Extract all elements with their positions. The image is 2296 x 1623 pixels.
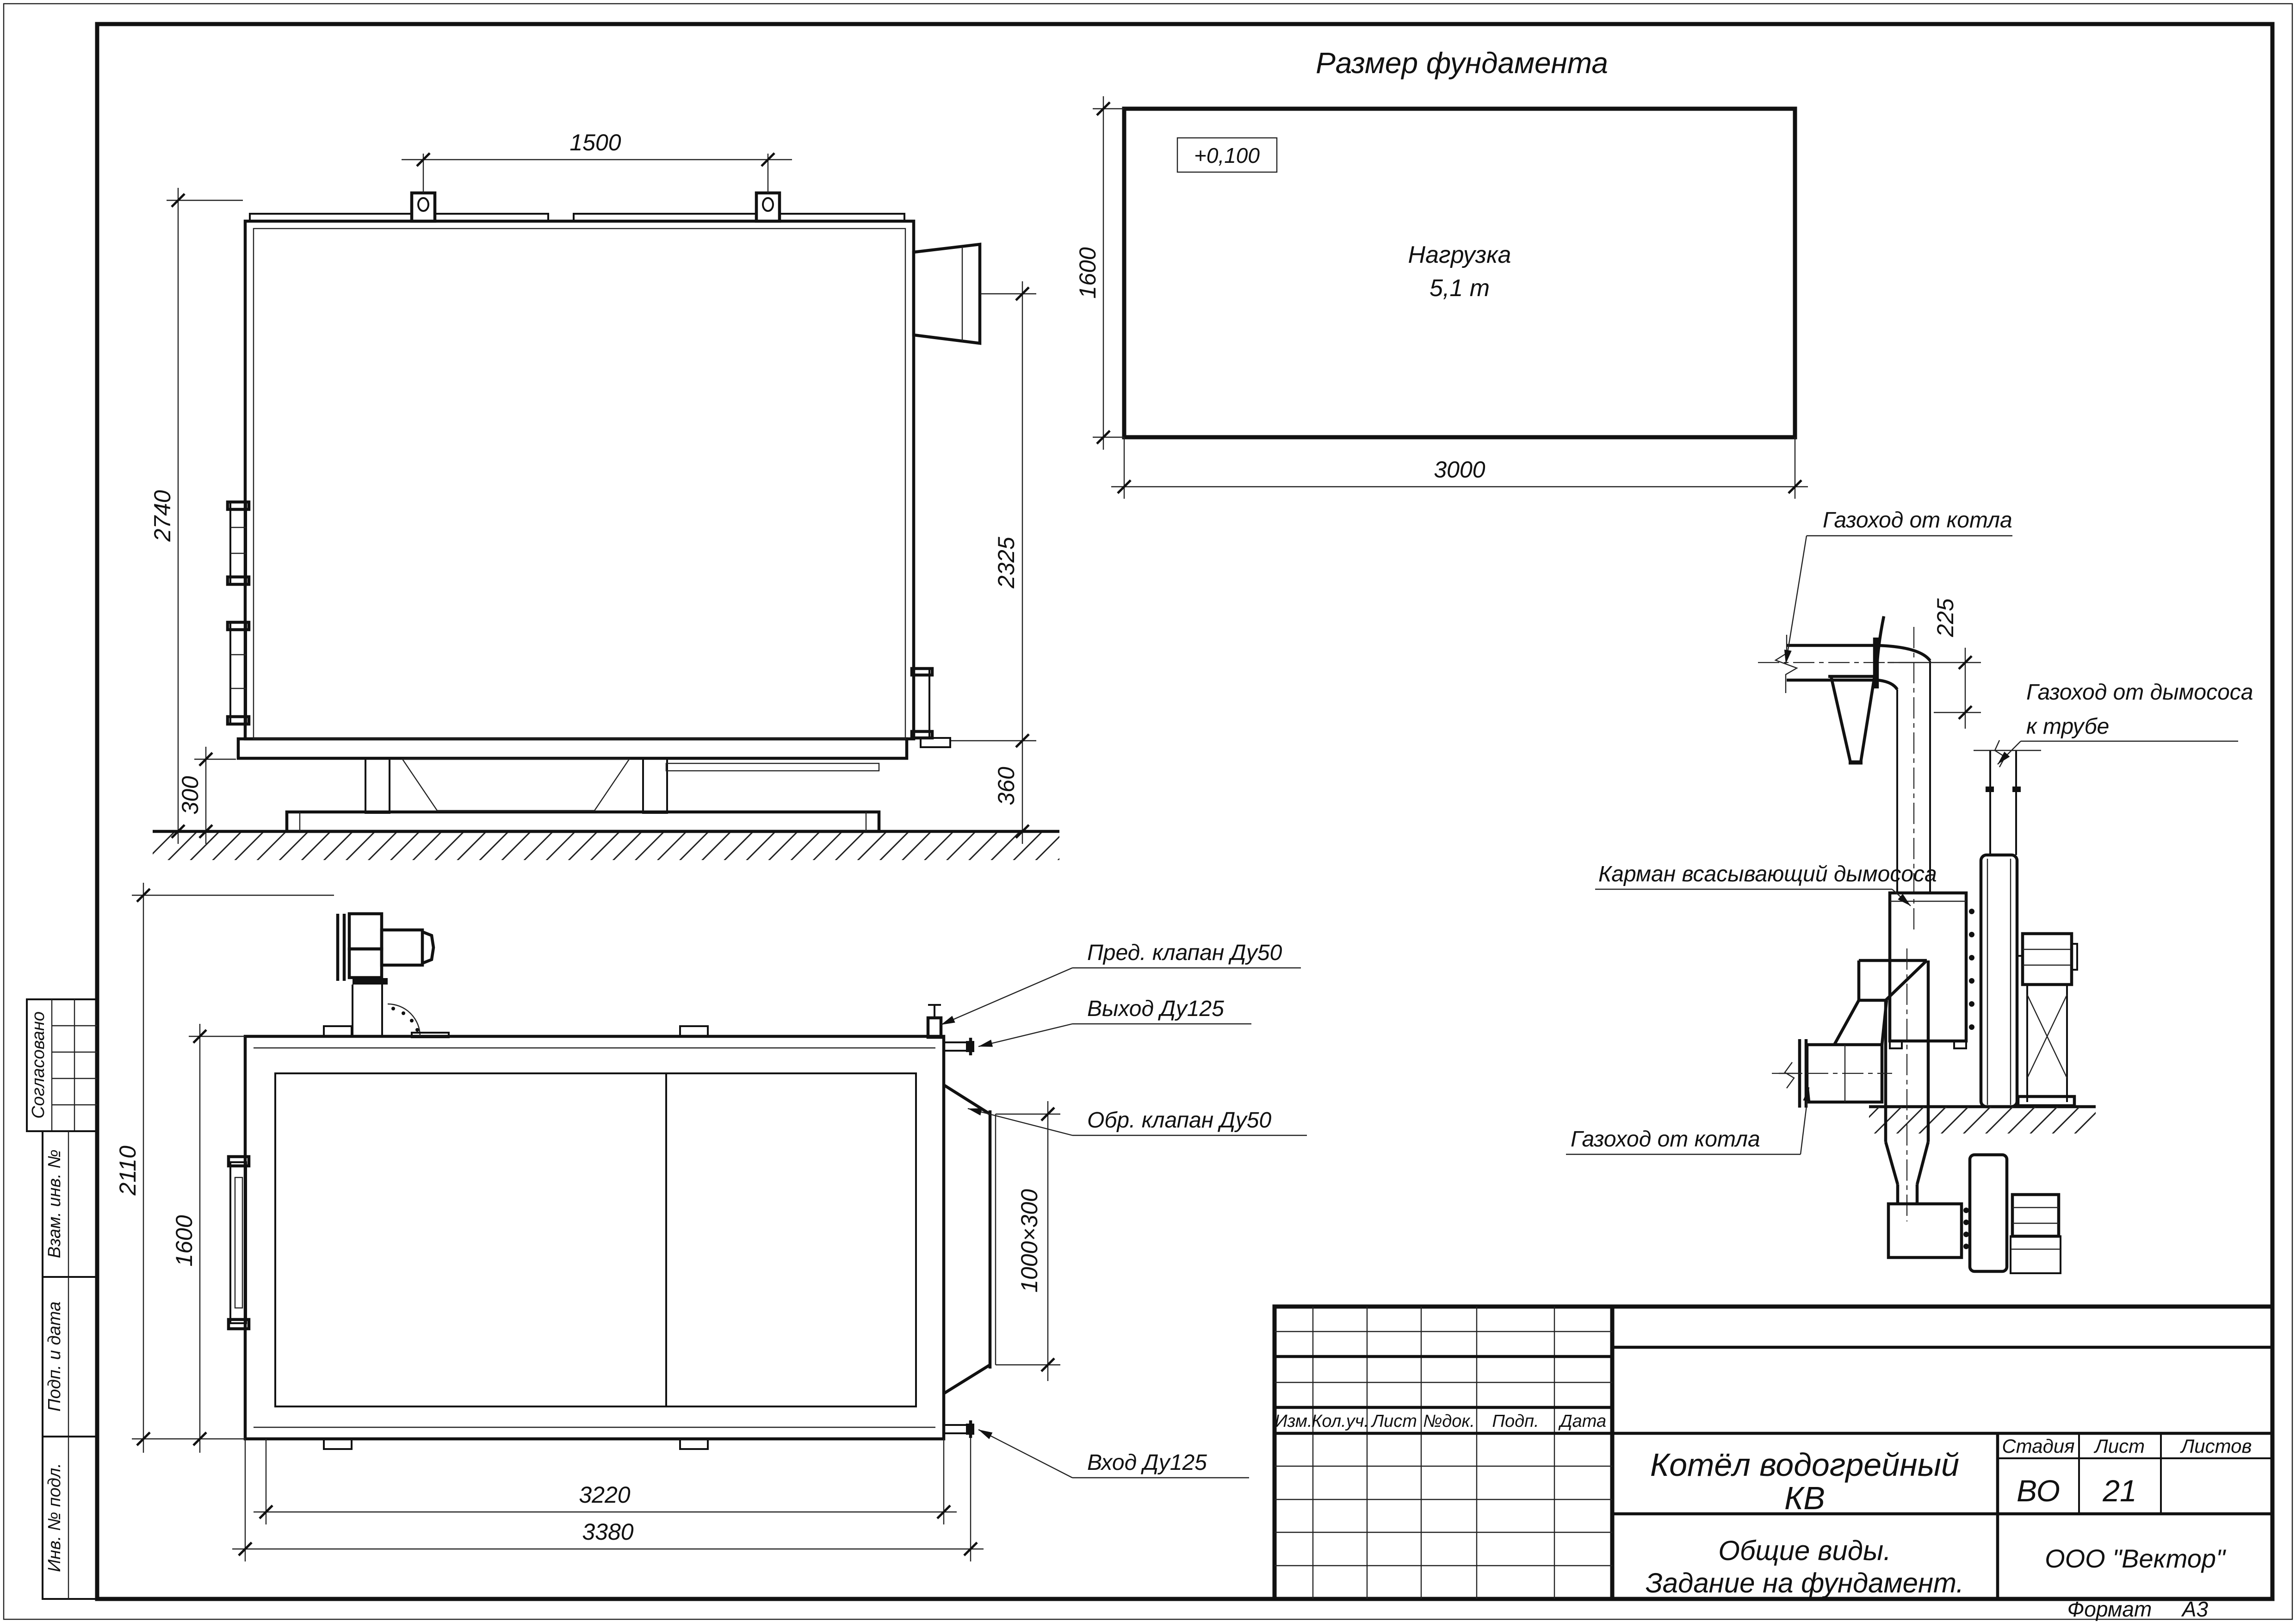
outlet-stub <box>944 1038 974 1055</box>
format-label: Формат <box>2067 1597 2152 1621</box>
lug-plan <box>324 1439 352 1449</box>
rev-col-izm: Изм. <box>1275 1412 1312 1431</box>
dim-plan-body-height: 1600 <box>171 1215 197 1266</box>
svg-text:Газоход от котла: Газоход от котла <box>1571 1127 1760 1152</box>
lug-plan <box>680 1439 708 1449</box>
fan-motor <box>382 930 422 965</box>
margin-label-agreed: Согласовано <box>29 1011 48 1119</box>
stage-value: ВО <box>2017 1474 2060 1508</box>
svg-text:Вход Ду125: Вход Ду125 <box>1087 1450 1207 1475</box>
dim-flue-height: 2325 <box>993 537 1019 588</box>
boiler-body <box>245 221 914 739</box>
label-inlet: Вход Ду125 <box>977 1426 1249 1478</box>
subtitle-line2: Задание на фундамент. <box>1646 1567 1964 1598</box>
dim-side-height: 2740 <box>149 490 175 542</box>
rev-col-podp: Подп. <box>1492 1412 1539 1431</box>
flange-bolts <box>1969 909 1974 1030</box>
inlet-stub <box>944 1420 974 1438</box>
boiler-side-view: 1500 2740 2325 360 300 <box>149 130 1059 860</box>
fan-casing <box>349 914 382 949</box>
boiler-plan-outline <box>245 1036 944 1439</box>
foundation-load-line2: 5,1 т <box>1430 275 1490 302</box>
safety-valve <box>928 1005 941 1037</box>
sheets-label: Листов <box>2180 1435 2252 1457</box>
format-note: Формат А3 <box>2067 1597 2209 1621</box>
sheet-value: 21 <box>2102 1474 2136 1508</box>
side-flange-right <box>912 669 950 747</box>
fan-collar <box>353 978 388 985</box>
flue-elevation: 225 <box>1595 508 2253 1134</box>
dim-base-height: 360 <box>993 767 1019 805</box>
cad-drawing: Согласовано Взам. инв. № Подп. и дата Ин… <box>0 0 2296 1623</box>
svg-text:Пред. клапан Ду50: Пред. клапан Ду50 <box>1087 941 1282 965</box>
doc-title-line2: КВ <box>1784 1480 1825 1516</box>
margin-label-sign-date: Подп. и дата <box>45 1301 64 1412</box>
side-flange-lower <box>228 622 249 724</box>
margin-label-replace-inv: Взам. инв. № <box>45 1149 64 1258</box>
smoke-exhauster <box>338 914 449 1037</box>
foundation-load-line1: Нагрузка <box>1408 242 1511 268</box>
label-suction-pocket: Карман всасывающий дымососа <box>1595 862 1937 909</box>
svg-text:Карман всасывающий дымососа: Карман всасывающий дымососа <box>1598 862 1937 886</box>
side-flange-upper <box>228 502 249 584</box>
foundation-plan: Размер фундамента +0,100 Нагрузка 5,1 т … <box>1075 46 1808 499</box>
dim-inner-length: 3220 <box>579 1482 630 1508</box>
duct-transition <box>944 1085 996 1394</box>
margin-label-inv-orig: Инв. № подл. <box>45 1463 64 1572</box>
label-flue-plan-from-boiler: Газоход от котла <box>1566 1087 1813 1154</box>
dim-overall-length: 3380 <box>582 1519 633 1545</box>
foundation-title: Размер фундамента <box>1316 46 1608 80</box>
dim-duct-size: 1000×300 <box>1016 1189 1042 1293</box>
svg-text:к трубе: к трубе <box>2026 714 2109 739</box>
lug-plan <box>324 1026 352 1036</box>
title-block: Изм. Кол.уч. Лист №док. Подп. Дата Котёл… <box>1275 1307 2272 1599</box>
stage-label: Стадия <box>2002 1435 2074 1457</box>
sheet-label: Лист <box>2093 1435 2145 1457</box>
rev-col-koluch: Кол.уч. <box>1312 1412 1369 1431</box>
drawing-sheet: Согласовано Взам. инв. № Подп. и дата Ин… <box>0 0 2296 1623</box>
boiler-plan-view: Пред. клапан Ду50 Выход Ду125 Обр. клапа… <box>115 883 1307 1561</box>
base-skid <box>287 812 879 831</box>
lug-plan <box>680 1026 708 1036</box>
revision-table: Изм. Кол.уч. Лист №док. Подп. Дата <box>1275 1307 1612 1599</box>
dim-clearance: 300 <box>177 776 203 815</box>
rev-col-ndok: №док. <box>1423 1412 1475 1431</box>
margin-blocks: Согласовано Взам. инв. № Подп. и дата Ин… <box>27 999 97 1599</box>
doc-title-line1: Котёл водогрейный <box>1650 1447 1959 1483</box>
company-name: ООО "Вектор" <box>2045 1544 2226 1573</box>
dim-flue-offset: 225 <box>1932 598 1958 638</box>
svg-text:Обр. клапан Ду50: Обр. клапан Ду50 <box>1087 1108 1271 1133</box>
ground-hatch <box>1869 1107 2096 1134</box>
flue-outlet <box>914 244 980 343</box>
support-leg <box>365 758 390 813</box>
label-flue-to-stack: Газоход от дымососа к трубе <box>1995 680 2253 767</box>
fan-motor-elevation <box>2017 934 2077 985</box>
dim-foundation-width: 3000 <box>1434 457 1485 483</box>
dim-foundation-height: 1600 <box>1075 247 1101 298</box>
dim-plan-overall-height: 2110 <box>115 1146 141 1196</box>
svg-text:Газоход от дымососа: Газоход от дымососа <box>2026 680 2253 705</box>
fan-scroll <box>1981 855 2017 1107</box>
fan-plan <box>1888 1155 2061 1273</box>
drain-pan <box>402 759 629 811</box>
label-outlet: Выход Ду125 <box>978 997 1251 1050</box>
support-beam <box>238 739 907 758</box>
svg-text:Газоход от котла: Газоход от котла <box>1823 508 2012 533</box>
motor-stand <box>2018 985 2074 1106</box>
ground-hatch <box>153 831 1059 860</box>
label-check-valve: Обр. клапан Ду50 <box>967 1105 1307 1135</box>
svg-text:Выход Ду125: Выход Ду125 <box>1087 997 1224 1021</box>
plan-left-flange <box>229 1157 249 1329</box>
elevation-mark: +0,100 <box>1194 143 1260 167</box>
rev-col-list: Лист <box>1370 1412 1417 1431</box>
break-line <box>1785 1062 1794 1088</box>
rev-col-data: Дата <box>1558 1412 1606 1431</box>
dim-lug-span: 1500 <box>569 130 621 155</box>
label-flue-from-boiler: Газоход от котла <box>1782 508 2012 664</box>
support-leg <box>643 758 667 813</box>
format-value: А3 <box>2181 1597 2209 1621</box>
subtitle-line1: Общие виды. <box>1718 1535 1891 1566</box>
